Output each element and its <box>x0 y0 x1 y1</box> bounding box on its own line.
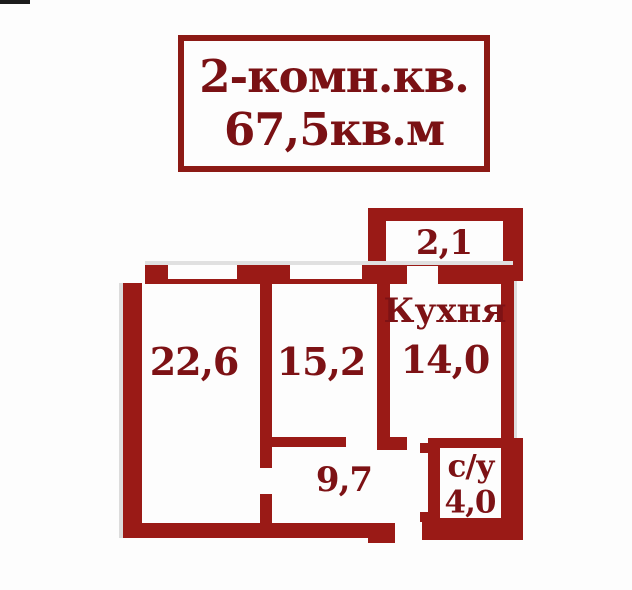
scan-artifact-mark <box>0 0 30 4</box>
kitchen-area-label: 14,0 <box>401 341 490 379</box>
wall-bedroom-hall <box>260 437 346 447</box>
bathroom-name-label: с/у <box>447 452 494 483</box>
title-card: 2-комн.кв. 67,5кв.м <box>178 35 490 172</box>
entrance-jamb-left <box>368 538 395 543</box>
bedroom-area-label: 15,2 <box>277 343 366 381</box>
kitchen-name-label: Кухня <box>384 294 507 328</box>
wall-bottom-left <box>123 523 395 538</box>
hallway-area-label: 9,7 <box>316 463 372 497</box>
wall-kitchen-bathroom <box>435 438 506 448</box>
window-living-room <box>168 265 237 279</box>
wall-kitchen-foot <box>377 437 407 450</box>
wall-left <box>123 283 142 538</box>
balcony-door-opening <box>407 266 438 284</box>
total-area-label: 67,5кв.м <box>224 104 444 156</box>
wall-bathroom-foot-bottom <box>420 512 440 522</box>
balcony-area-label: 2,1 <box>416 226 472 260</box>
window-bedroom <box>290 265 362 279</box>
living-area-label: 22,6 <box>150 343 239 381</box>
wall-balcony-top <box>368 208 523 221</box>
wall-living-hall-lower <box>260 494 272 523</box>
apartment-type-label: 2-комн.кв. <box>199 51 469 103</box>
floor-plan: 2-комн.кв. 67,5кв.м 2,1 22,6 15,2 Кухня … <box>0 0 632 590</box>
bathroom-area-label: 4,0 <box>445 488 496 519</box>
wall-balcony-left <box>368 208 386 267</box>
wall-right-bathroom <box>501 438 523 523</box>
